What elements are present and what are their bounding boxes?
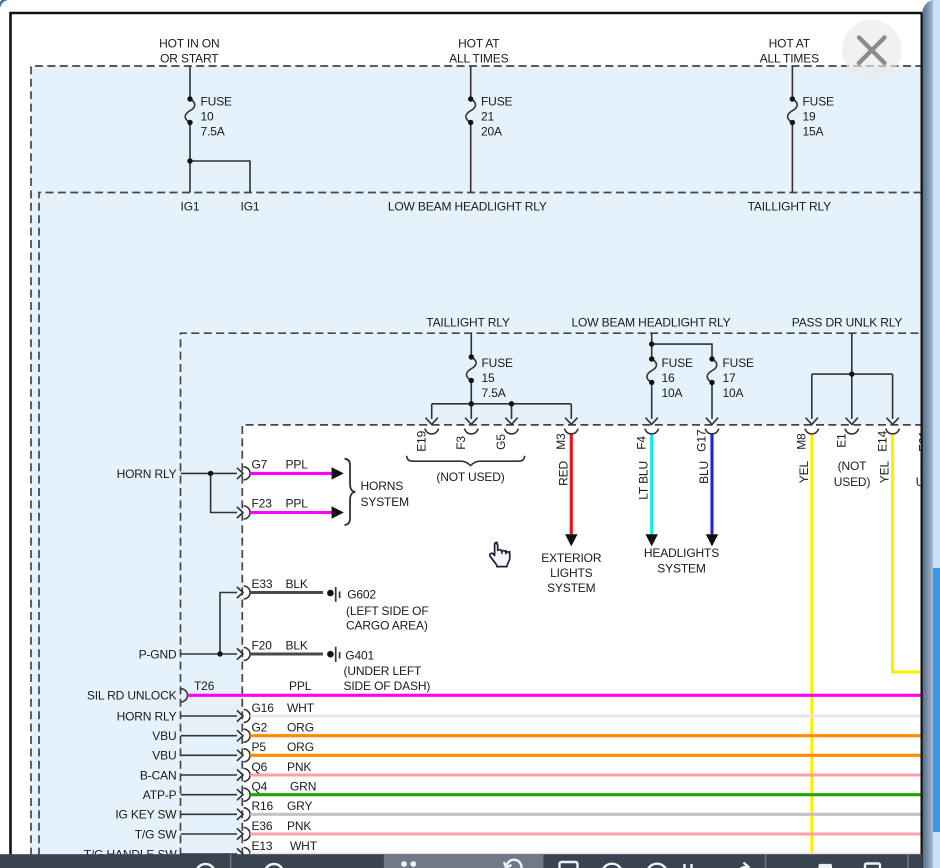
svg-text:20A: 20A [481, 124, 502, 138]
svg-text:HEADLIGHTS: HEADLIGHTS [644, 546, 719, 560]
svg-text:SYSTEM: SYSTEM [657, 562, 706, 576]
svg-text:B-CAN: B-CAN [140, 768, 177, 782]
svg-text:F4: F4 [634, 436, 648, 450]
svg-text:USED): USED) [834, 475, 871, 489]
svg-text:M8: M8 [795, 433, 809, 450]
svg-text:ORG: ORG [287, 740, 314, 754]
svg-text:SIL RD UNLOCK: SIL RD UNLOCK [87, 689, 177, 703]
svg-text:G401: G401 [345, 649, 374, 663]
svg-text:GRN: GRN [290, 780, 316, 794]
svg-text:10: 10 [201, 109, 215, 123]
svg-text:(UNDER LEFT: (UNDER LEFT [344, 664, 423, 678]
svg-text:YEL: YEL [878, 461, 892, 484]
svg-text:21: 21 [481, 109, 495, 123]
svg-text:19: 19 [803, 109, 817, 123]
svg-text:OR START: OR START [160, 51, 219, 65]
svg-text:PPL: PPL [286, 457, 309, 471]
svg-text:F20: F20 [252, 639, 273, 653]
svg-text:T/G SW: T/G SW [135, 827, 178, 841]
svg-text:(LEFT SIDE OF: (LEFT SIDE OF [346, 604, 429, 618]
svg-text:CARGO AREA): CARGO AREA) [346, 619, 428, 633]
svg-text:VBU: VBU [152, 749, 176, 763]
svg-text:BLK: BLK [286, 639, 308, 653]
svg-text:LOW BEAM HEADLIGHT RLY: LOW BEAM HEADLIGHT RLY [572, 315, 731, 329]
svg-text:G17: G17 [695, 429, 709, 452]
svg-text:WHT: WHT [287, 701, 315, 715]
svg-text:Q4: Q4 [252, 780, 268, 794]
svg-text:E14: E14 [875, 430, 889, 451]
svg-text:T26: T26 [194, 679, 215, 693]
svg-text:IG KEY SW: IG KEY SW [115, 808, 177, 822]
svg-text:HOT IN ON: HOT IN ON [159, 36, 219, 50]
svg-text:FUSE: FUSE [481, 94, 513, 108]
svg-text:BLU: BLU [697, 461, 711, 484]
svg-text:FUSE: FUSE [662, 356, 694, 370]
svg-text:SIDE OF DASH): SIDE OF DASH) [344, 679, 431, 693]
svg-text:HOT AT: HOT AT [458, 36, 500, 50]
svg-text:IG1: IG1 [181, 199, 200, 213]
svg-text:(NOT: (NOT [838, 459, 868, 473]
svg-text:G2: G2 [252, 721, 268, 735]
svg-text:PNK: PNK [287, 819, 311, 833]
svg-text:PPL: PPL [286, 497, 309, 511]
svg-text:G7: G7 [252, 457, 268, 471]
svg-text:F3: F3 [454, 436, 468, 450]
svg-text:ALL TIMES: ALL TIMES [449, 51, 508, 65]
svg-text:P5: P5 [252, 740, 267, 754]
svg-text:BLK: BLK [286, 577, 308, 591]
svg-text:SYSTEM: SYSTEM [547, 581, 596, 595]
svg-text:10A: 10A [723, 386, 744, 400]
svg-text:TAILLIGHT RLY: TAILLIGHT RLY [748, 199, 832, 213]
svg-text:RED: RED [556, 461, 570, 486]
svg-text:G16: G16 [252, 701, 275, 715]
svg-text:(NOT USED): (NOT USED) [436, 470, 504, 484]
svg-text:Q6: Q6 [252, 760, 268, 774]
svg-text:15: 15 [482, 371, 496, 385]
svg-text:VBU: VBU [152, 729, 176, 743]
svg-text:R16: R16 [252, 799, 274, 813]
svg-text:F23: F23 [252, 497, 273, 511]
svg-text:7.5A: 7.5A [482, 386, 506, 400]
svg-text:E19: E19 [414, 430, 428, 451]
svg-text:HORN RLY: HORN RLY [117, 467, 177, 481]
svg-text:FUSE: FUSE [723, 356, 755, 370]
svg-text:15A: 15A [803, 124, 824, 138]
svg-text:16: 16 [662, 371, 676, 385]
svg-text:GRY: GRY [287, 799, 312, 813]
svg-text:E36: E36 [252, 819, 273, 833]
svg-text:EXTERIOR: EXTERIOR [541, 551, 602, 565]
svg-text:17: 17 [723, 371, 737, 385]
svg-text:E13: E13 [252, 839, 273, 853]
svg-text:PNK: PNK [287, 760, 311, 774]
svg-text:SYSTEM: SYSTEM [361, 495, 410, 509]
svg-text:PASS DR UNLK RLY: PASS DR UNLK RLY [792, 315, 903, 329]
svg-text:HORN RLY: HORN RLY [117, 709, 177, 723]
svg-text:E1: E1 [835, 433, 849, 448]
svg-text:7.5A: 7.5A [201, 124, 225, 138]
svg-text:LT BLU: LT BLU [637, 461, 651, 500]
svg-text:G5: G5 [494, 434, 508, 450]
svg-text:FUSE: FUSE [482, 356, 514, 370]
svg-text:HOT AT: HOT AT [769, 36, 811, 50]
svg-text:WHT: WHT [290, 839, 318, 853]
svg-text:LOW BEAM HEADLIGHT RLY: LOW BEAM HEADLIGHT RLY [388, 199, 547, 213]
svg-text:LIGHTS: LIGHTS [550, 566, 593, 580]
svg-text:ATP-P: ATP-P [143, 788, 177, 802]
svg-text:ORG: ORG [287, 721, 314, 735]
svg-text:YEL: YEL [797, 461, 811, 484]
svg-text:M3: M3 [554, 433, 568, 450]
svg-text:IG1: IG1 [241, 199, 260, 213]
svg-text:PPL: PPL [289, 679, 312, 693]
svg-text:TAILLIGHT RLY: TAILLIGHT RLY [426, 315, 510, 329]
svg-text:G602: G602 [347, 587, 376, 601]
svg-text:HORNS: HORNS [361, 479, 404, 493]
svg-text:P-GND: P-GND [139, 647, 177, 661]
svg-text:FUSE: FUSE [201, 94, 233, 108]
svg-text:FUSE: FUSE [803, 94, 835, 108]
svg-text:E33: E33 [252, 577, 273, 591]
svg-text:ALL TIMES: ALL TIMES [760, 51, 819, 65]
svg-text:10A: 10A [662, 386, 683, 400]
